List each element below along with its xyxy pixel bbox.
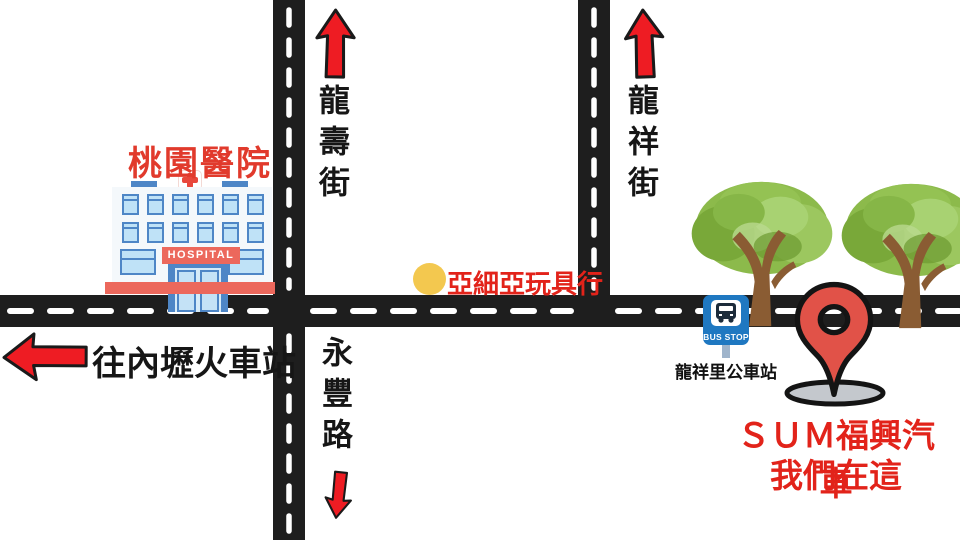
street-label-longshou: 龍壽街 (316, 84, 347, 207)
up-arrow-icon (311, 7, 358, 84)
hospital-building: HOSPITAL (105, 170, 275, 295)
street-label-yongfeng: 永豐路 (319, 336, 350, 459)
up-arrow-icon (620, 6, 669, 84)
ground-window (120, 249, 156, 275)
left-arrow-icon (0, 326, 92, 385)
hospital-base (105, 282, 275, 294)
toy-store-label: 亞細亞玩具行 (447, 264, 603, 301)
direction-west-label: 往內壢火車站 (92, 336, 296, 385)
bus-stop-name-label: 龍祥里公車站 (672, 358, 780, 383)
down-arrow-icon (319, 466, 357, 521)
bus-stop-pole (722, 345, 730, 358)
hospital-sign-banner: HOSPITAL (162, 247, 240, 264)
street-label-longxiang: 龍祥街 (625, 84, 656, 207)
destination-tagline-label: 我們在這 (726, 449, 946, 497)
bus-stop-sign-label: BUS STOP (703, 332, 749, 342)
hospital-windows (122, 194, 264, 243)
map-canvas: HOSPITAL 桃園醫院 龍壽街 龍祥街 永豐路 往內壢火車站 亞細亞玩具行 (0, 0, 960, 540)
bus-stop-sign: BUS STOP (703, 295, 749, 345)
hospital-facade: HOSPITAL (112, 187, 272, 283)
toy-store-marker-dot (413, 263, 446, 295)
bus-icon (711, 300, 741, 326)
hospital-name-label: 桃園醫院 (128, 136, 272, 185)
location-pin-icon (792, 280, 876, 402)
